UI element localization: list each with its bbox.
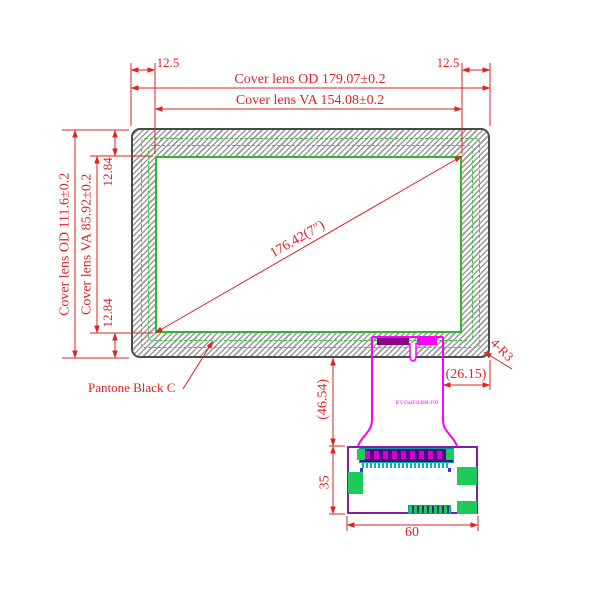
dim-cover-od-width: Cover lens OD 179.07±0.2 bbox=[200, 73, 420, 88]
dim-fpc-right-offset: (26.15) bbox=[440, 368, 492, 383]
connector-tab-left bbox=[357, 449, 365, 460]
bezel-color-label: Pantone Black C bbox=[88, 381, 188, 395]
connector-tab-right bbox=[446, 449, 454, 460]
viewing-area bbox=[155, 156, 462, 333]
dim-side-margin-bottom: 12.84 bbox=[101, 283, 115, 343]
pcb-pad-right-bottom bbox=[457, 501, 477, 514]
cover-lens-outline bbox=[131, 128, 490, 358]
pcb-pad-left bbox=[348, 472, 363, 494]
dim-pcb-height: 35 bbox=[319, 462, 334, 502]
pcb-pad-right-top bbox=[457, 467, 477, 485]
dim-side-margin-top: 12.84 bbox=[101, 142, 115, 202]
pin-last-mark bbox=[448, 468, 451, 472]
dim-cover-va-width: Cover lens VA 154.08±0.2 bbox=[200, 94, 420, 109]
dim-cover-va-height: Cover lens VA 85.92±0.2 bbox=[81, 144, 96, 344]
technical-drawing: 12.5 12.5 Cover lens OD 179.07±0.2 Cover… bbox=[0, 0, 600, 600]
dim-pcb-width: 60 bbox=[392, 526, 432, 541]
dim-top-margin-right: 12.5 bbox=[430, 56, 466, 70]
dim-top-margin-left: 12.5 bbox=[150, 56, 186, 70]
fpc-connector bbox=[359, 448, 454, 463]
pcb-bottom-connector bbox=[408, 505, 451, 514]
fpc-part-marking: KY-Da4F4LRM-T09 bbox=[393, 401, 441, 406]
dim-cover-od-height: Cover lens OD 111.6±0.2 bbox=[59, 144, 74, 344]
dim-fpc-length: (46.54) bbox=[317, 364, 332, 434]
pin1-mark bbox=[360, 468, 363, 472]
connector-contact-row bbox=[365, 451, 448, 459]
connector-pin-row bbox=[362, 462, 450, 468]
